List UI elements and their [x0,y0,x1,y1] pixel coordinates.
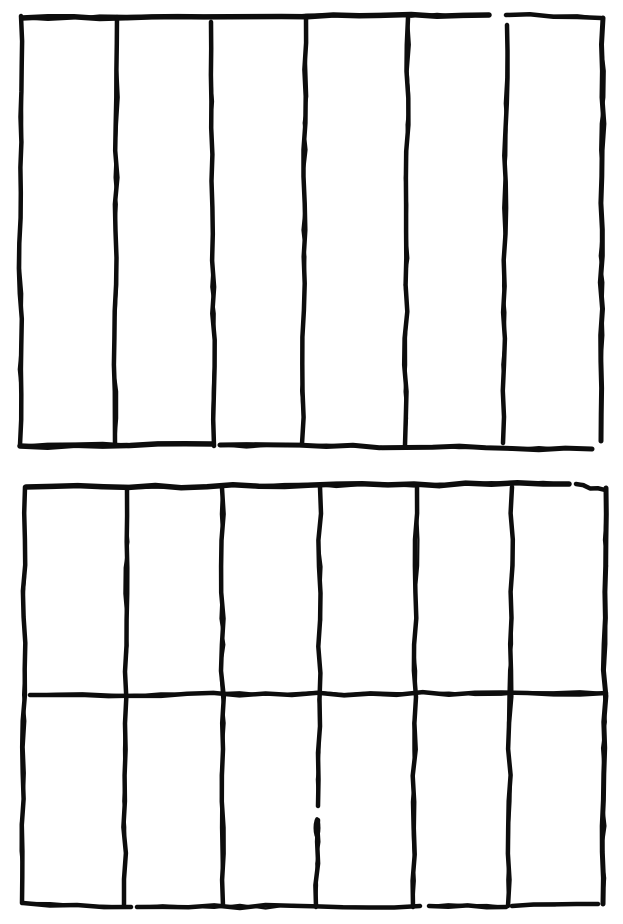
top-grid [19,14,605,450]
bottom-grid-ink-blob [314,817,321,839]
figure-svg [0,0,623,924]
page: { "figure": { "title": "Hand-drawn ink s… [0,0,623,924]
bottom-grid [21,482,607,908]
sketch-figure [0,0,623,924]
